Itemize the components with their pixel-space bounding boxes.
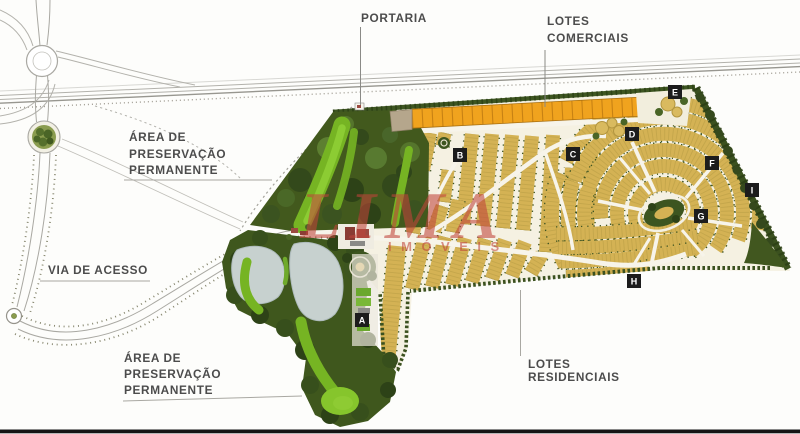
svg-text:ÁREA DE: ÁREA DE bbox=[124, 351, 181, 365]
svg-text:PRESERVAÇÃO: PRESERVAÇÃO bbox=[124, 367, 221, 381]
svg-text:H: H bbox=[631, 277, 638, 287]
svg-text:D: D bbox=[629, 130, 636, 140]
svg-text:I: I bbox=[751, 186, 754, 196]
svg-text:LOTES: LOTES bbox=[547, 14, 590, 28]
svg-text:ÁREA DE: ÁREA DE bbox=[129, 130, 186, 144]
svg-text:PERMANENTE: PERMANENTE bbox=[129, 163, 218, 177]
svg-text:PERMANENTE: PERMANENTE bbox=[124, 383, 213, 397]
svg-text:F: F bbox=[709, 159, 715, 169]
svg-text:IMÓVEIS: IMÓVEIS bbox=[388, 239, 509, 254]
svg-text:RESIDENCIAIS: RESIDENCIAIS bbox=[528, 370, 620, 384]
svg-text:LOTES: LOTES bbox=[528, 357, 571, 371]
svg-text:G: G bbox=[697, 212, 704, 222]
svg-text:VIA DE ACESSO: VIA DE ACESSO bbox=[48, 263, 148, 277]
svg-text:COMERCIAIS: COMERCIAIS bbox=[547, 31, 629, 45]
svg-text:PRESERVAÇÃO: PRESERVAÇÃO bbox=[129, 147, 226, 161]
svg-text:A: A bbox=[359, 316, 366, 326]
svg-text:E: E bbox=[672, 88, 678, 98]
svg-text:C: C bbox=[570, 150, 577, 160]
svg-text:B: B bbox=[457, 151, 464, 161]
svg-text:PORTARIA: PORTARIA bbox=[361, 11, 427, 25]
